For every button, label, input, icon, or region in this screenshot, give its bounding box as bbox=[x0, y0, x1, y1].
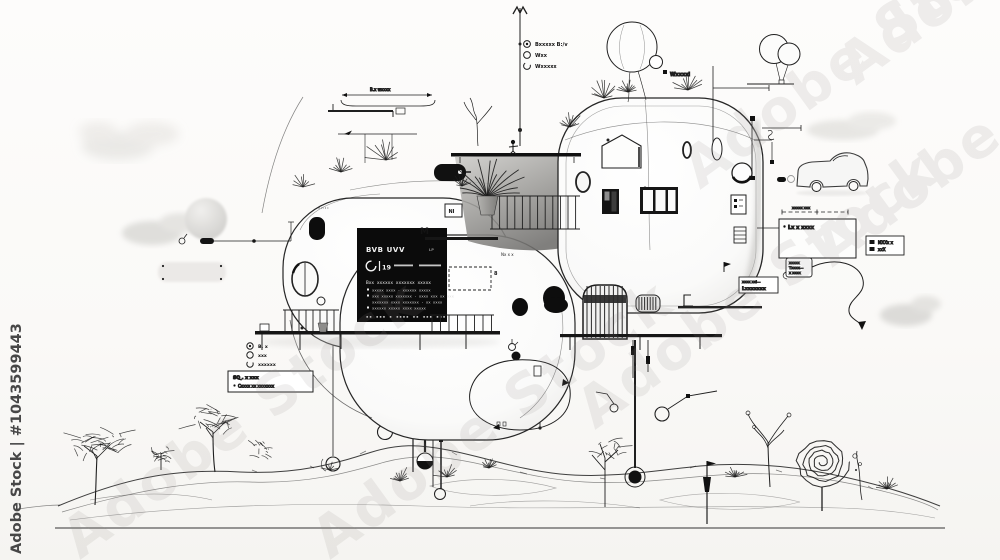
svg-text:B. x: B. x bbox=[258, 344, 268, 350]
stock-illustration-canvas: 8 BVB UVV LP 19 Bxx xxxxxx xxxxxxx xxxxx… bbox=[0, 0, 1000, 560]
svg-text:Nx x x: Nx x x bbox=[501, 252, 514, 257]
m-mark: M bbox=[420, 227, 429, 237]
two-pane-window bbox=[602, 189, 619, 214]
black-door bbox=[309, 217, 325, 240]
soft-pillow-box bbox=[158, 262, 226, 282]
oval-window-left bbox=[292, 262, 318, 296]
svg-text:Wxxxxx: Wxxxxx bbox=[535, 64, 557, 70]
svg-text:BVB UVV: BVB UVV bbox=[366, 246, 405, 254]
svg-text:19: 19 bbox=[382, 264, 392, 272]
micro-label: v ʜ ɪ ɪ bbox=[318, 206, 329, 210]
svg-text:Wxx: Wxx bbox=[535, 53, 548, 59]
svg-text:B.x wxxxx: B.x wxxxx bbox=[370, 87, 391, 92]
panel-box-window bbox=[731, 195, 746, 214]
svg-text:Bxxxxx B:/v: Bxxxxx B:/v bbox=[535, 42, 568, 48]
side-watermark: Adobe Stock | #1043599443 bbox=[9, 323, 25, 554]
svg-text:Wxxxxl: Wxxxxl bbox=[670, 72, 690, 78]
svg-text:xxx: xxx bbox=[258, 354, 267, 359]
porthole-b bbox=[544, 297, 568, 313]
oval-window bbox=[576, 172, 590, 192]
svg-text:NI: NI bbox=[449, 209, 455, 215]
floating-ball bbox=[185, 198, 227, 240]
porthole-a bbox=[512, 298, 528, 316]
svg-text:8: 8 bbox=[494, 271, 498, 277]
three-pane-window bbox=[640, 187, 678, 214]
svg-text:LP: LP bbox=[429, 247, 434, 252]
svg-text:xxxxx xxx: xxxxx xxx bbox=[792, 206, 811, 210]
